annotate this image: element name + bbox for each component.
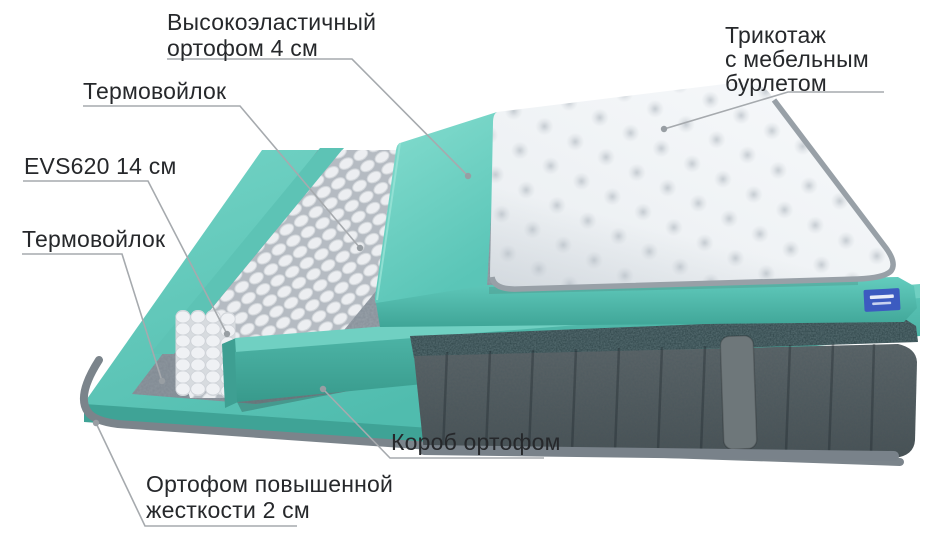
label-hard-foam: Ортофом повышенной жесткости 2 см bbox=[146, 471, 393, 523]
label-line: EVS620 14 см bbox=[24, 153, 176, 179]
label-thermofelt-bottom: Термовойлок bbox=[22, 226, 165, 252]
label-line: бурлетом bbox=[725, 71, 869, 95]
label-line: жесткости 2 см bbox=[146, 497, 393, 523]
label-thermofelt-top: Термовойлок bbox=[83, 78, 226, 104]
label-knit-cover: Трикотаж с мебельным бурлетом bbox=[725, 23, 869, 95]
label-line: Трикотаж bbox=[725, 23, 869, 47]
label-line: с мебельным bbox=[725, 47, 869, 71]
label-line: Ортофом повышенной bbox=[146, 471, 393, 497]
layer-knit-cover bbox=[490, 82, 893, 289]
label-line: ортофом 4 см bbox=[167, 35, 376, 61]
label-line: Термовойлок bbox=[22, 226, 165, 252]
label-line: Короб ортофом bbox=[391, 429, 561, 455]
mattress-layers-diagram: Высокоэластичный ортофом 4 см Трикотаж с… bbox=[0, 0, 932, 541]
label-foam-box: Короб ортофом bbox=[391, 429, 561, 455]
label-line: Термовойлок bbox=[83, 78, 226, 104]
label-line: Высокоэластичный bbox=[167, 9, 376, 35]
mattress-handle bbox=[720, 335, 757, 449]
label-highelastic-foam: Высокоэластичный ортофом 4 см bbox=[167, 9, 376, 61]
brand-tag bbox=[863, 288, 900, 312]
label-spring-block: EVS620 14 см bbox=[24, 153, 176, 179]
